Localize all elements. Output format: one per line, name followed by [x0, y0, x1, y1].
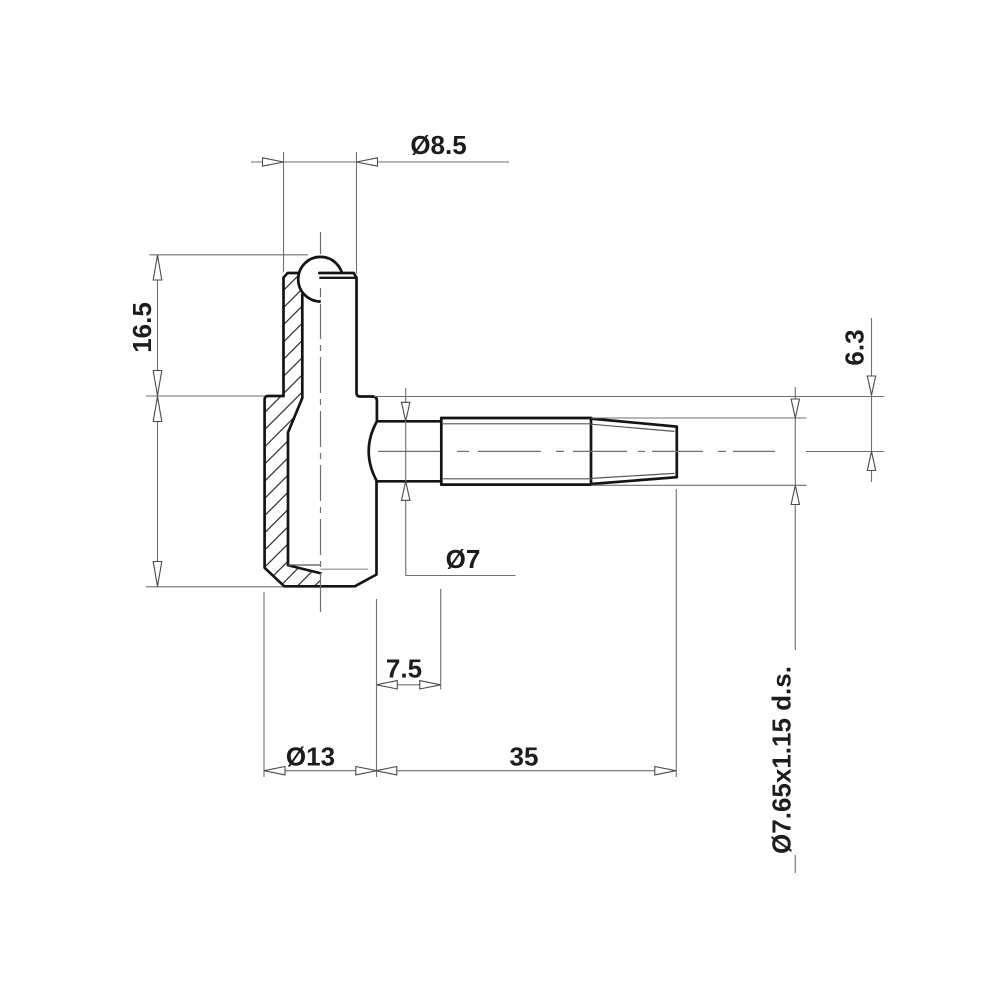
svg-text:Ø8.5: Ø8.5 — [410, 130, 466, 160]
svg-text:6.3: 6.3 — [840, 329, 870, 365]
svg-text:7.5: 7.5 — [386, 654, 422, 684]
svg-text:Ø7: Ø7 — [446, 544, 481, 574]
svg-text:16.5: 16.5 — [127, 302, 157, 353]
svg-text:Ø13: Ø13 — [286, 742, 335, 772]
svg-text:35: 35 — [510, 742, 539, 772]
svg-text:Ø7.65x1.15 d.s.: Ø7.65x1.15 d.s. — [767, 666, 797, 854]
